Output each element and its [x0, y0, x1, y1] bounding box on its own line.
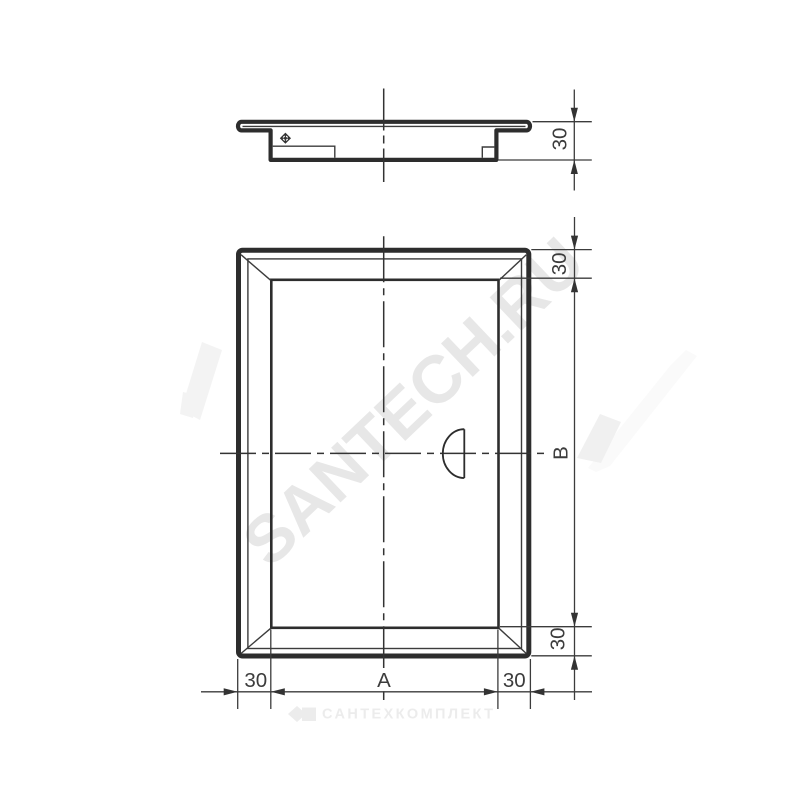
- svg-text:САНТЕХКОМПЛЕКТ: САНТЕХКОМПЛЕКТ: [322, 707, 495, 723]
- svg-text:30: 30: [244, 669, 267, 692]
- svg-text:30: 30: [547, 627, 570, 650]
- svg-text:A: A: [377, 669, 391, 692]
- svg-text:30: 30: [503, 669, 526, 692]
- svg-text:30: 30: [549, 128, 572, 151]
- svg-text:B: B: [550, 446, 573, 460]
- svg-text:30: 30: [548, 252, 571, 275]
